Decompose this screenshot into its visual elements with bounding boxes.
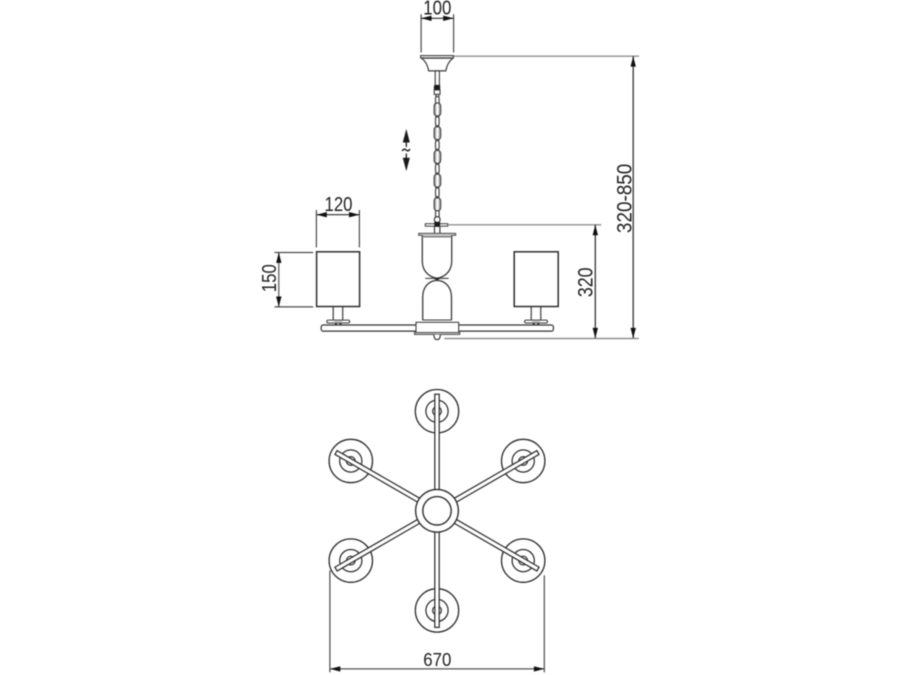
svg-text:670: 670 <box>423 649 451 670</box>
svg-text:120: 120 <box>324 192 352 215</box>
svg-text:150: 150 <box>258 264 281 292</box>
svg-text:100: 100 <box>423 0 451 19</box>
svg-text:320: 320 <box>574 267 598 297</box>
